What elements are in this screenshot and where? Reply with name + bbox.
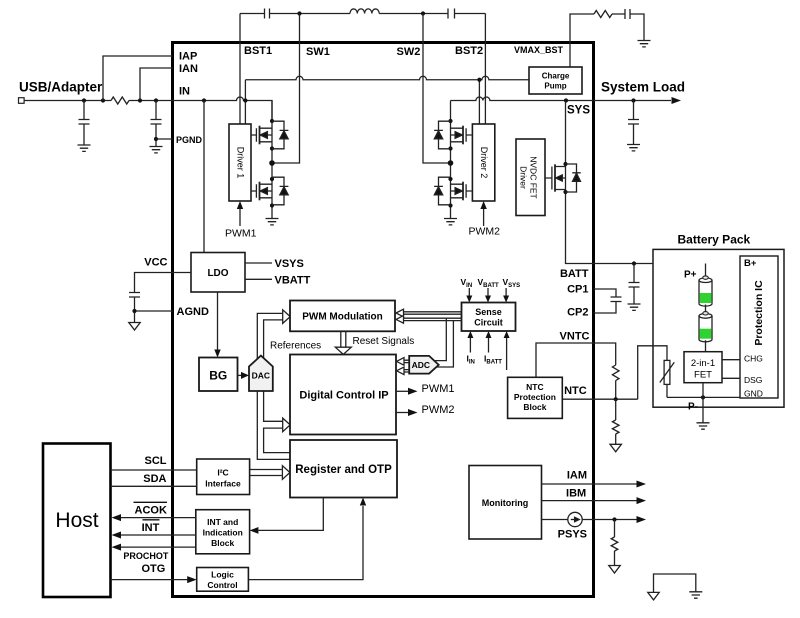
svg-text:IAP: IAP <box>179 51 197 63</box>
svg-text:OTG: OTG <box>141 563 165 575</box>
svg-text:SW2: SW2 <box>397 46 421 58</box>
svg-text:Protection: Protection <box>514 392 556 402</box>
svg-text:INT: INT <box>142 522 160 534</box>
svg-text:BG: BG <box>209 369 227 383</box>
svg-text:NTC: NTC <box>526 382 543 392</box>
svg-text:CP1: CP1 <box>567 284 588 296</box>
svg-text:NTC: NTC <box>564 385 587 397</box>
svg-text:DAC: DAC <box>252 371 270 381</box>
svg-text:LDO: LDO <box>207 268 228 279</box>
svg-text:PROCHOT: PROCHOT <box>123 551 169 561</box>
svg-text:B+: B+ <box>744 258 757 269</box>
svg-text:Reset Signals: Reset Signals <box>353 336 415 347</box>
svg-text:CP2: CP2 <box>567 307 588 319</box>
svg-text:AGND: AGND <box>177 306 209 318</box>
svg-text:Host: Host <box>55 509 98 532</box>
svg-text:USB/Adapter: USB/Adapter <box>19 80 103 95</box>
svg-text:GND: GND <box>744 389 763 399</box>
svg-text:Monitoring: Monitoring <box>482 498 529 508</box>
svg-text:Battery Pack: Battery Pack <box>678 233 751 247</box>
svg-text:ACOK: ACOK <box>135 505 167 517</box>
svg-text:System Load: System Load <box>601 80 685 95</box>
svg-text:VMAX_BST: VMAX_BST <box>514 45 564 55</box>
svg-text:References: References <box>270 341 321 352</box>
svg-text:IN: IN <box>179 86 190 98</box>
svg-text:P+: P+ <box>684 270 697 281</box>
svg-text:CHG: CHG <box>744 354 763 364</box>
svg-text:PGND: PGND <box>176 135 203 145</box>
svg-text:Block: Block <box>523 402 546 412</box>
svg-text:P-: P- <box>688 402 698 413</box>
svg-text:SYS: SYS <box>567 105 590 117</box>
svg-text:IBM: IBM <box>566 488 586 500</box>
svg-text:ADC: ADC <box>412 360 430 370</box>
svg-text:Charge: Charge <box>542 72 570 81</box>
svg-text:VBATT: VBATT <box>275 275 311 287</box>
svg-text:Protection IC: Protection IC <box>753 280 765 346</box>
svg-text:Driver 1: Driver 1 <box>236 147 246 179</box>
svg-text:Block: Block <box>211 538 234 548</box>
svg-text:VSYS: VSYS <box>275 258 304 270</box>
svg-text:PWM1: PWM1 <box>225 228 257 240</box>
svg-text:DSG: DSG <box>744 375 762 385</box>
svg-text:BST1: BST1 <box>244 45 272 57</box>
svg-text:IAM: IAM <box>567 470 587 482</box>
svg-text:SDA: SDA <box>143 473 166 485</box>
svg-text:Circuit: Circuit <box>474 318 503 328</box>
svg-text:Indication: Indication <box>203 528 243 538</box>
svg-text:Driver 2: Driver 2 <box>479 147 489 179</box>
svg-text:Logic: Logic <box>211 570 234 580</box>
svg-text:SW1: SW1 <box>306 46 330 58</box>
svg-text:PSYS: PSYS <box>558 529 587 541</box>
svg-text:BST2: BST2 <box>455 45 483 57</box>
svg-text:Digital Control IP: Digital Control IP <box>299 390 388 402</box>
svg-text:VNTC: VNTC <box>560 331 590 343</box>
svg-text:PWM1: PWM1 <box>422 383 455 395</box>
svg-text:I²C: I²C <box>217 468 228 478</box>
svg-text:BATT: BATT <box>560 268 589 280</box>
svg-text:2-in-1: 2-in-1 <box>691 358 715 369</box>
svg-text:FET: FET <box>694 370 712 381</box>
svg-text:PWM2: PWM2 <box>422 404 455 416</box>
svg-text:VCC: VCC <box>144 257 167 269</box>
svg-text:INT and: INT and <box>207 517 238 527</box>
svg-text:Register and OTP: Register and OTP <box>295 464 392 476</box>
svg-text:Pump: Pump <box>544 82 566 91</box>
svg-text:PWM Modulation: PWM Modulation <box>302 312 383 323</box>
svg-text:SCL: SCL <box>145 455 167 467</box>
svg-text:PWM2: PWM2 <box>469 226 501 238</box>
svg-text:Interface: Interface <box>205 479 241 489</box>
svg-text:IAN: IAN <box>179 63 198 75</box>
svg-text:Control: Control <box>207 580 237 590</box>
svg-text:Sense: Sense <box>475 307 502 317</box>
